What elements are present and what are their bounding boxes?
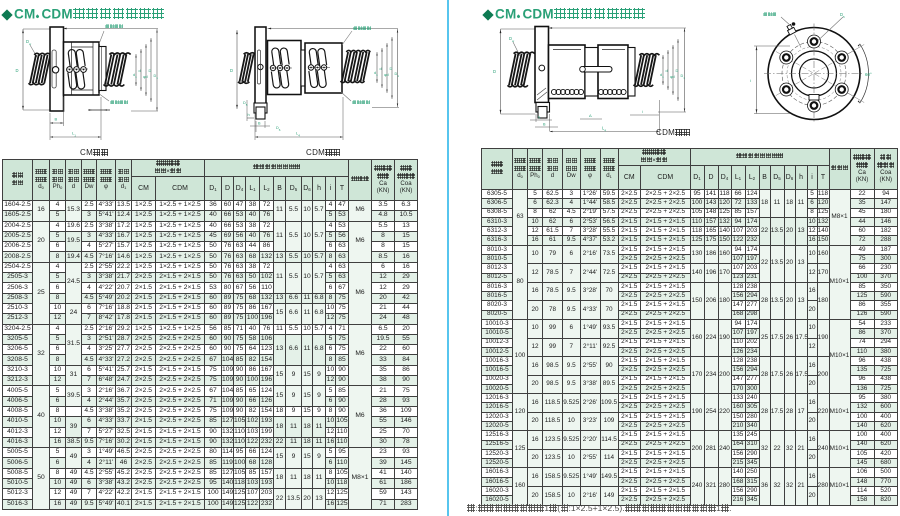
svg-text:d1: d1: [133, 73, 137, 79]
svg-text:B: B: [55, 117, 58, 122]
svg-text:d: d: [666, 69, 668, 73]
svg-text:i: i: [750, 78, 751, 83]
svg-text:Dw: Dw: [26, 39, 32, 46]
svg-text:D5: D5: [840, 12, 845, 19]
svg-text:i: i: [642, 110, 643, 114]
svg-text:D: D: [16, 68, 19, 73]
svg-text:D1: D1: [395, 72, 400, 78]
svg-text:B: B: [543, 123, 546, 127]
svg-text:60°: 60°: [865, 72, 872, 77]
svg-text:D: D: [230, 68, 233, 73]
svg-text:h: h: [538, 116, 540, 120]
svg-text:D: D: [676, 69, 679, 73]
svg-text:Dw: Dw: [509, 36, 515, 43]
svg-text:D1: D1: [154, 74, 159, 80]
svg-text:Δ: Δ: [589, 113, 592, 118]
svg-text:φd: φd: [670, 75, 675, 79]
svg-text:d: d: [139, 69, 141, 73]
svg-text:B: B: [258, 122, 261, 126]
svg-text:φd: φd: [384, 73, 389, 77]
svg-text:L1: L1: [72, 131, 76, 138]
svg-text:D: D: [390, 67, 393, 71]
svg-text:d: d: [380, 67, 382, 71]
svg-text:d1: d1: [374, 71, 378, 77]
svg-text:D: D: [149, 69, 152, 73]
svg-text:φd: φd: [143, 75, 148, 79]
svg-text:D: D: [493, 69, 496, 74]
svg-text:h: h: [248, 113, 250, 117]
svg-text:d1: d1: [660, 73, 664, 79]
svg-text:D6: D6: [276, 126, 281, 132]
svg-text:L4: L4: [296, 131, 300, 138]
